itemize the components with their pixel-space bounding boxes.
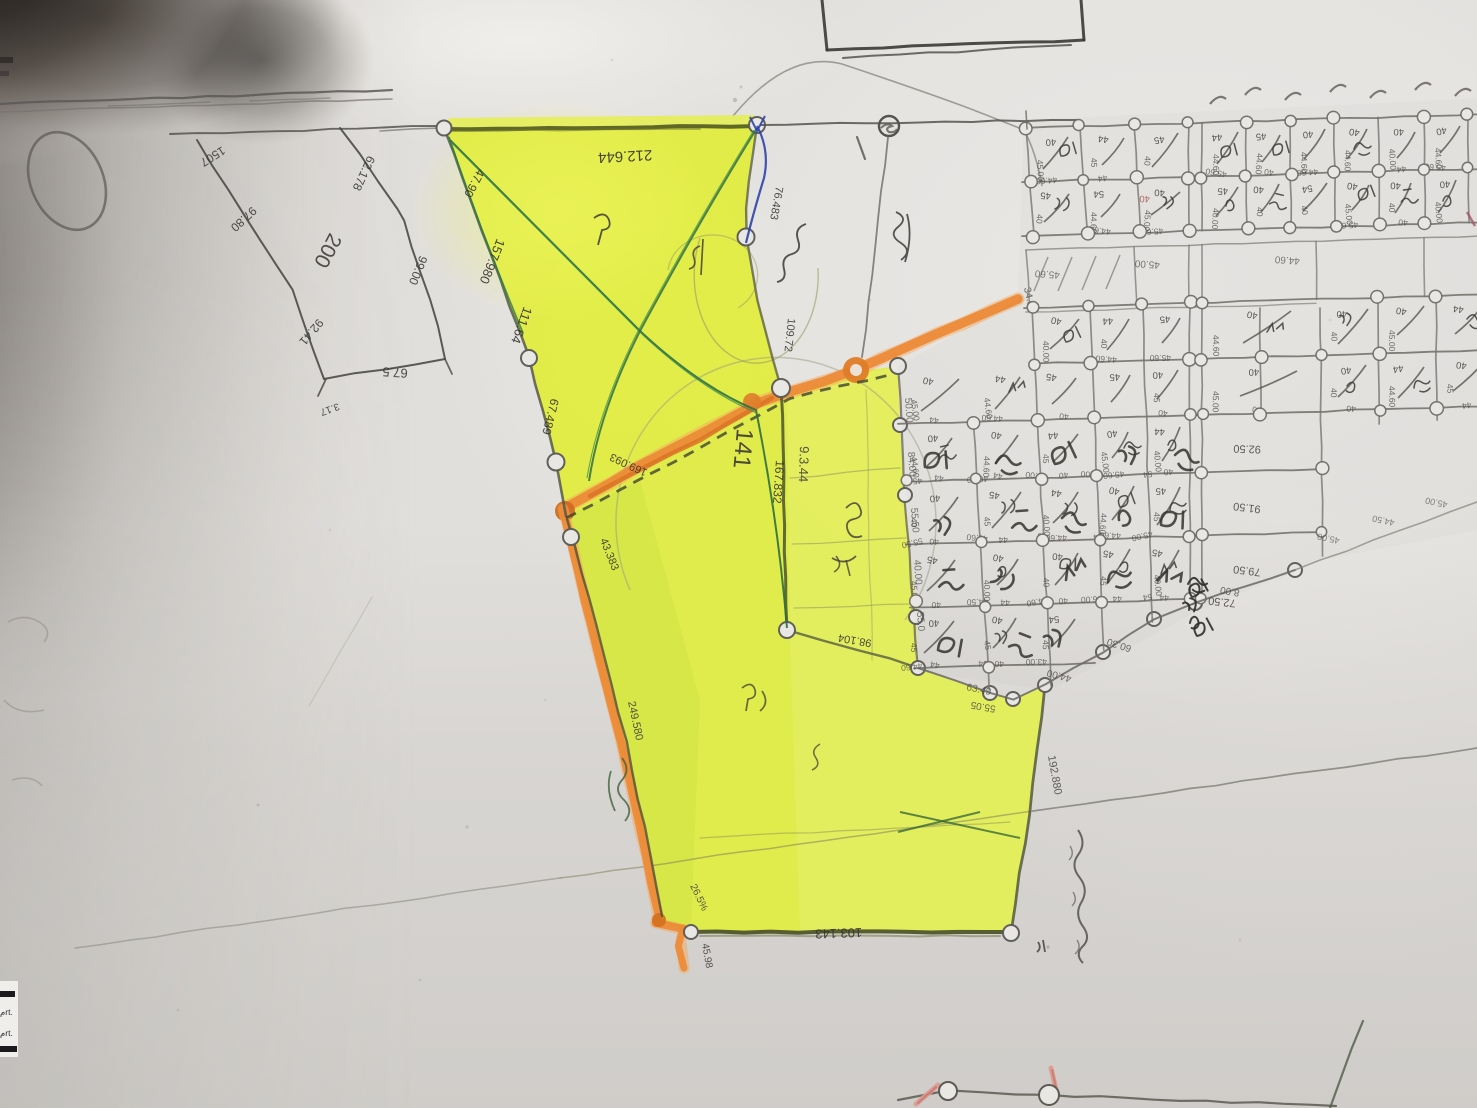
svg-text:40: 40 [927, 432, 938, 444]
svg-text:54: 54 [1301, 182, 1313, 195]
svg-text:45: 45 [1041, 454, 1051, 464]
svg-text:40: 40 [991, 429, 1003, 441]
svg-text:40: 40 [929, 492, 940, 504]
svg-text:40: 40 [1346, 180, 1358, 192]
svg-text:44.60: 44.60 [1211, 335, 1221, 357]
svg-text:45: 45 [1151, 546, 1163, 559]
svg-text:45: 45 [988, 489, 1000, 501]
svg-text:44: 44 [1050, 487, 1062, 499]
svg-text:40: 40 [1157, 408, 1168, 419]
svg-text:40: 40 [1058, 470, 1069, 481]
svg-text:44.60: 44.60 [1387, 386, 1397, 408]
svg-text:40: 40 [1152, 369, 1163, 380]
svg-text:40: 40 [1041, 577, 1052, 588]
svg-text:44: 44 [1159, 593, 1169, 603]
svg-text:40: 40 [1348, 126, 1360, 138]
svg-text:40: 40 [1248, 366, 1259, 377]
svg-text:43.00: 43.00 [1025, 657, 1047, 667]
svg-text:44: 44 [1102, 315, 1113, 326]
svg-text:54: 54 [1142, 469, 1153, 480]
svg-text:54: 54 [1142, 592, 1153, 603]
svg-text:45: 45 [1152, 393, 1162, 403]
svg-text:45: 45 [1109, 371, 1120, 382]
svg-text:40: 40 [1255, 207, 1265, 217]
svg-text:مrt.: مrt. [0, 1007, 13, 1018]
svg-text:40: 40 [1387, 203, 1397, 213]
svg-text:40: 40 [991, 613, 1003, 626]
svg-text:40: 40 [1393, 126, 1404, 137]
svg-text:45: 45 [1045, 371, 1057, 383]
svg-text:40: 40 [929, 537, 939, 547]
svg-text:40: 40 [1139, 193, 1150, 204]
svg-text:44.60: 44.60 [1343, 150, 1353, 172]
svg-text:44: 44 [928, 415, 939, 426]
svg-text:44.60: 44.60 [1095, 354, 1117, 365]
svg-text:103.143: 103.143 [815, 925, 862, 942]
svg-text:44.60: 44.60 [981, 413, 1003, 424]
svg-text:40.00: 40.00 [1210, 208, 1221, 230]
svg-text:44: 44 [1000, 597, 1010, 607]
svg-text:45: 45 [1089, 158, 1099, 168]
svg-text:40: 40 [1329, 388, 1339, 398]
svg-text:40.00: 40.00 [1041, 341, 1051, 363]
svg-text:40: 40 [928, 617, 939, 629]
svg-text:45: 45 [1445, 384, 1455, 394]
svg-text:40: 40 [1336, 308, 1347, 319]
svg-text:40: 40 [1099, 339, 1109, 349]
svg-text:44.60: 44.60 [1254, 153, 1265, 175]
svg-text:40: 40 [1390, 179, 1401, 191]
svg-text:45: 45 [1153, 133, 1165, 146]
svg-text:44: 44 [1452, 303, 1464, 315]
svg-text:45: 45 [1159, 313, 1170, 325]
svg-text:40: 40 [1263, 167, 1274, 178]
svg-text:40: 40 [1059, 411, 1070, 422]
svg-text:45: 45 [982, 640, 993, 651]
svg-text:40: 40 [1340, 364, 1352, 376]
svg-text:44: 44 [1097, 173, 1108, 184]
svg-text:45: 45 [1155, 485, 1166, 496]
svg-text:40: 40 [1058, 596, 1068, 606]
svg-text:44.60: 44.60 [1274, 253, 1300, 266]
svg-text:مrt.: مrt. [0, 1028, 13, 1039]
svg-text:44: 44 [1396, 164, 1406, 175]
svg-text:141: 141 [728, 427, 758, 469]
svg-text:40: 40 [909, 518, 919, 528]
svg-text:54: 54 [1093, 188, 1104, 199]
svg-text:44: 44 [1461, 400, 1472, 411]
svg-text:44: 44 [994, 373, 1006, 385]
svg-text:44: 44 [1154, 425, 1165, 437]
svg-text:40: 40 [992, 551, 1004, 564]
svg-text:67.5: 67.5 [382, 364, 408, 381]
svg-text:54: 54 [1048, 613, 1059, 625]
svg-text:44: 44 [1047, 429, 1059, 441]
svg-text:45: 45 [909, 643, 919, 653]
svg-text:44: 44 [1392, 362, 1404, 375]
svg-text:45.00: 45.00 [1387, 330, 1397, 352]
svg-text:40: 40 [1346, 404, 1356, 414]
svg-text:44: 44 [1211, 131, 1222, 143]
svg-text:40: 40 [994, 659, 1004, 669]
svg-text:45.00: 45.00 [1134, 257, 1160, 270]
svg-text:40: 40 [1142, 156, 1153, 167]
svg-text:40: 40 [1398, 217, 1408, 227]
svg-text:212.644: 212.644 [598, 146, 653, 166]
svg-text:45.60: 45.60 [1149, 353, 1171, 363]
svg-text:40: 40 [1108, 484, 1120, 497]
svg-text:40: 40 [922, 374, 934, 387]
svg-text:40: 40 [1456, 359, 1468, 371]
svg-text:45: 45 [982, 516, 993, 527]
svg-text:45: 45 [926, 553, 938, 566]
svg-text:40: 40 [1299, 205, 1310, 216]
svg-text:45: 45 [1041, 640, 1051, 650]
svg-text:44.60: 44.60 [1296, 167, 1318, 178]
svg-text:44: 44 [933, 473, 944, 484]
svg-text:40: 40 [1253, 183, 1264, 195]
svg-text:45: 45 [1217, 185, 1228, 196]
svg-text:44: 44 [1112, 594, 1122, 604]
svg-text:40: 40 [1439, 178, 1450, 190]
svg-text:40: 40 [1329, 331, 1340, 341]
svg-text:40: 40 [1163, 467, 1173, 477]
svg-text:40: 40 [931, 600, 941, 610]
svg-text:45: 45 [1040, 189, 1051, 201]
svg-text:40: 40 [1050, 314, 1062, 327]
svg-text:44: 44 [1097, 133, 1109, 145]
svg-text:44: 44 [998, 535, 1008, 545]
svg-text:45.60: 45.60 [1034, 267, 1060, 280]
svg-text:9.3.44: 9.3.44 [796, 446, 812, 483]
svg-text:40: 40 [1045, 136, 1056, 148]
svg-text:40: 40 [1034, 214, 1045, 225]
svg-text:45.00: 45.00 [1211, 391, 1221, 413]
svg-text:45: 45 [1102, 547, 1114, 560]
svg-text:40: 40 [1302, 128, 1314, 140]
svg-text:40: 40 [1435, 124, 1448, 137]
svg-text:45: 45 [912, 476, 922, 486]
svg-text:92.50: 92.50 [1233, 442, 1261, 455]
svg-text:40.00: 40.00 [1433, 201, 1445, 223]
svg-text:40.00: 40.00 [1152, 450, 1164, 472]
svg-text:45: 45 [1255, 130, 1267, 142]
svg-text:44.60: 44.60 [1035, 175, 1057, 186]
svg-text:40: 40 [1395, 304, 1407, 317]
svg-text:40: 40 [1106, 427, 1118, 440]
svg-text:40: 40 [1246, 308, 1258, 321]
